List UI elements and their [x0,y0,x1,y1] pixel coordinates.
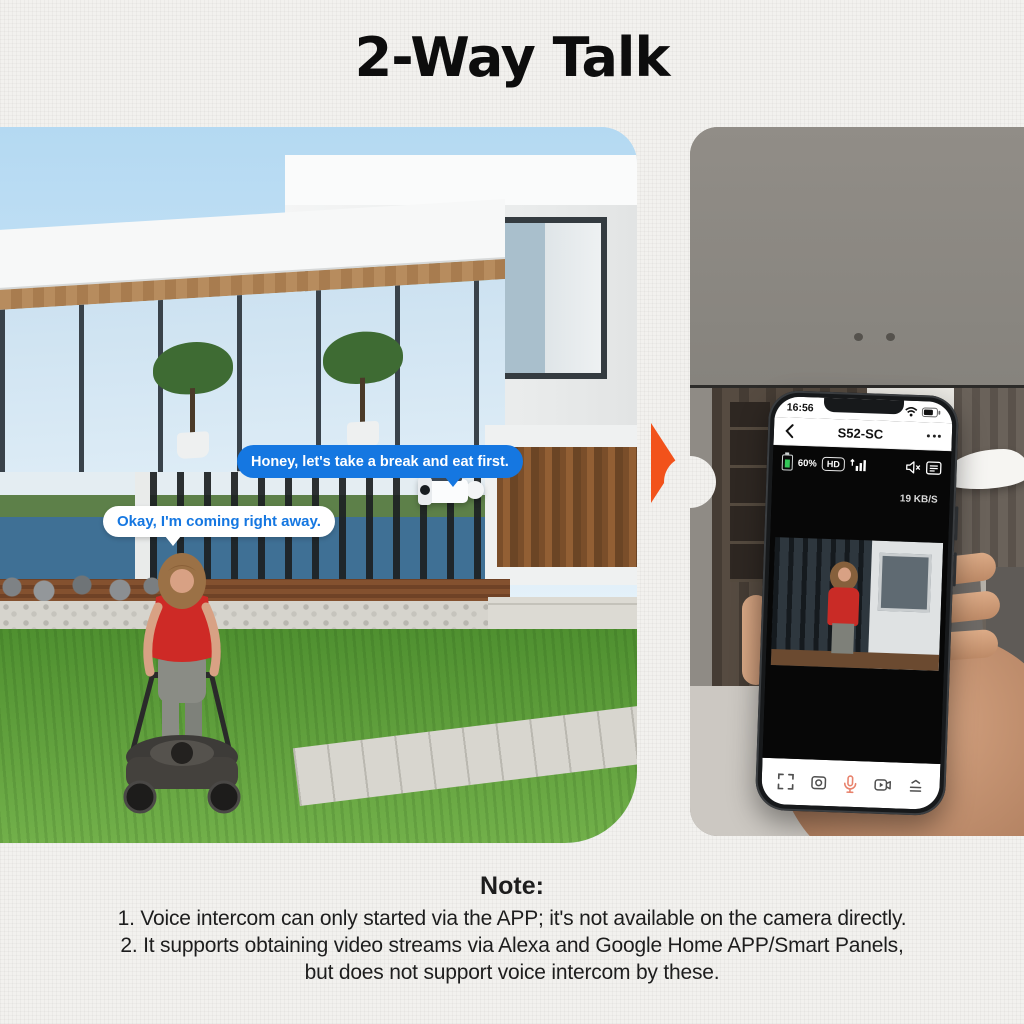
feed-woman-pants [831,623,854,654]
signal-strength-icon [850,458,867,473]
camera-lens-icon [420,485,430,495]
indoor-scene-photo: 16:56 [690,127,1024,836]
ceiling-light [854,333,863,341]
feed-woman-shirt [827,587,859,626]
playlist-icon[interactable] [926,460,943,476]
record-icon[interactable] [869,771,898,800]
person-speech-bubble: Okay, I'm coming right away. [103,506,335,537]
speaker-muted-icon[interactable] [905,459,922,475]
camera-battery-percent: 60% [798,457,817,469]
potted-tree [150,339,236,464]
video-hud: 60% HD [782,454,942,476]
camera-speech-text: Honey, let's take a break and eat first. [251,454,509,470]
feed-building [868,541,943,671]
note-line: 1. Voice intercom can only started via t… [0,905,1024,932]
smartphone: 16:56 [755,390,960,816]
battery-icon [922,407,941,418]
ceiling-light [886,333,895,341]
note-heading: Note: [0,872,1024,901]
tree-trunk [360,378,365,426]
feed-window [878,553,932,613]
camera-mount [466,481,484,499]
mic-icon[interactable] [836,769,865,798]
house-roof-band [285,155,637,205]
phone-toolbar [761,758,940,810]
camera-speech-bubble: Honey, let's take a break and eat first. [237,445,523,478]
camera-video-feed [771,537,943,671]
woman-mowing-illustration [100,545,260,835]
person-speech-text: Okay, I'm coming right away. [117,513,321,530]
camera-name-title: S52-SC [794,424,927,444]
menu-expand-icon[interactable] [901,772,930,801]
note-section: Note: 1. Voice intercom can only started… [0,872,1024,986]
tree-pot [177,431,209,459]
phone-screen: 16:56 [761,396,953,810]
wifi-icon [905,406,918,416]
fullscreen-icon[interactable] [771,767,800,796]
note-line: but does not support voice intercom by t… [0,959,1024,986]
ceiling [690,127,1024,385]
status-time: 16:56 [787,401,814,414]
live-view-area: 60% HD [763,445,952,764]
page-title: 2-Way Talk [0,26,1024,89]
panel-edge-notch [664,456,716,508]
camera-battery-icon [782,454,794,470]
bitrate-label: 19 KB/S [900,493,938,505]
potted-tree [320,329,406,454]
note-line: 2. It supports obtaining video streams v… [0,932,1024,959]
snapshot-icon[interactable] [804,768,833,797]
outdoor-scene-photo: Honey, let's take a break and eat first.… [0,127,637,843]
quality-badge[interactable]: HD [822,457,845,472]
tree-trunk [190,388,195,436]
phone-notch [824,398,904,415]
more-icon[interactable] [927,434,941,437]
window-curtain [545,223,601,373]
